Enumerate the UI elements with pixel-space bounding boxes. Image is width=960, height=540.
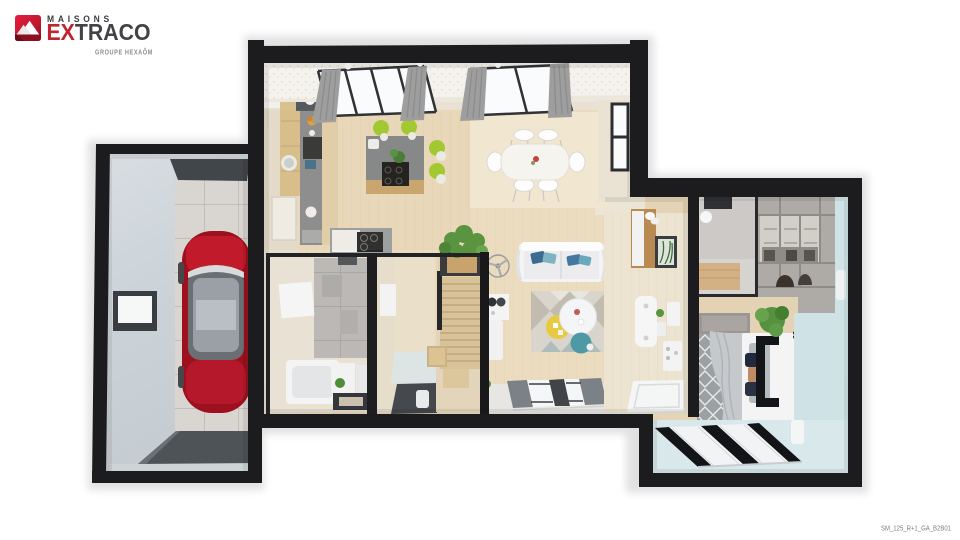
svg-text:SM_125_R+1_GA_B2B01: SM_125_R+1_GA_B2B01: [881, 526, 951, 533]
svg-text:GROUPE HEXAÔM: GROUPE HEXAÔM: [95, 48, 153, 57]
svg-text:EXTRACO: EXTRACO: [47, 19, 151, 45]
